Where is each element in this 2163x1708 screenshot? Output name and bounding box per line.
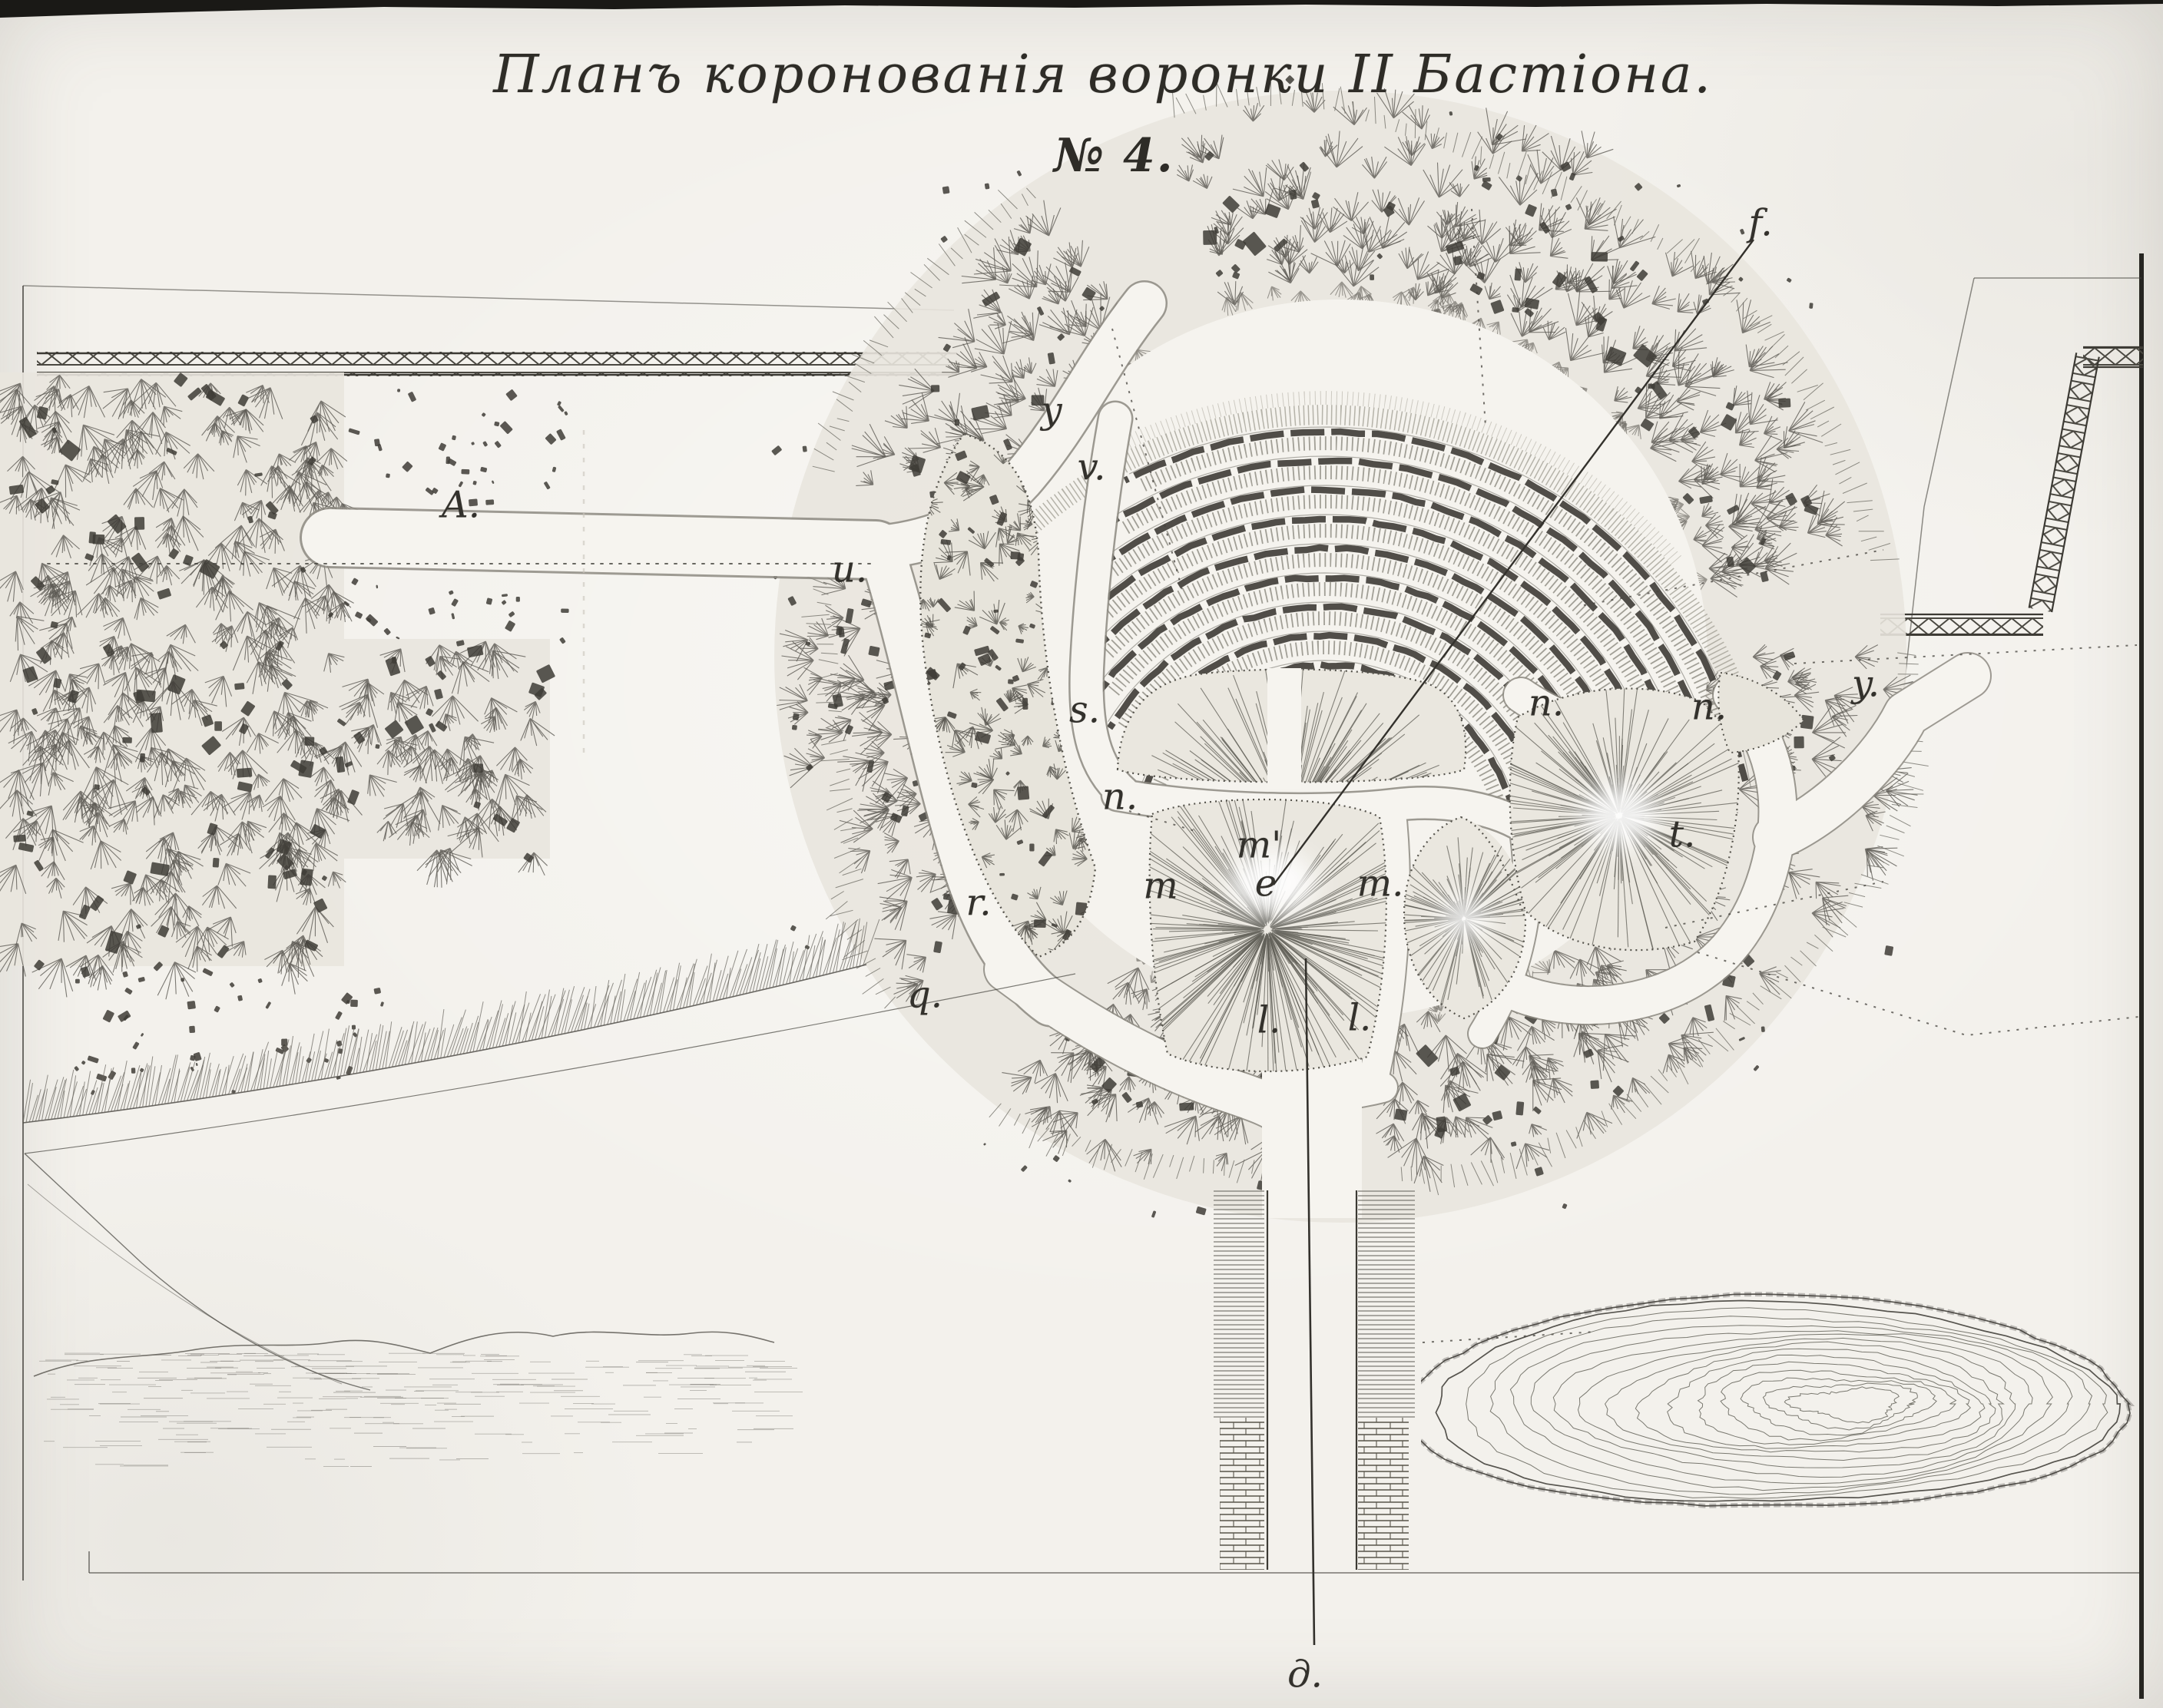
plan-label-m-right: m.: [1357, 866, 1404, 902]
plan-label-u: u.: [832, 551, 867, 588]
plan-label-n-left: n.: [1102, 779, 1138, 816]
plan-label-t: t.: [1669, 816, 1696, 853]
plan-label-y-left: y: [1041, 392, 1062, 429]
plan-label-r: r.: [966, 885, 992, 922]
scanned-plan-sheet: Планъ коронованія воронки II Бастіона. №…: [0, 0, 2163, 1708]
plan-label-l-left: l.: [1257, 1002, 1281, 1039]
plan-label-n-mid: n.: [1529, 685, 1564, 722]
plan-label-n-right: n.: [1691, 689, 1727, 726]
plan-label-A: A.: [442, 487, 480, 524]
plan-label-y-right: y.: [1852, 666, 1880, 703]
plan-label-f: f.: [1748, 205, 1772, 242]
plan-label-s: s.: [1069, 692, 1100, 729]
plan-label-q: q.: [907, 977, 942, 1014]
plan-label-v: v.: [1078, 449, 1106, 486]
plan-label-m-left: m: [1143, 868, 1178, 905]
labels-layer: f.yv.u.A.s.n.mm'em.n.n.y.t.r.q.l.l.д.: [0, 0, 2163, 1708]
plan-label-d: д.: [1287, 1657, 1323, 1693]
plan-label-e: e: [1255, 866, 1277, 902]
plan-label-l-right: l.: [1348, 1000, 1372, 1037]
plan-label-m-prime: m': [1237, 827, 1282, 864]
